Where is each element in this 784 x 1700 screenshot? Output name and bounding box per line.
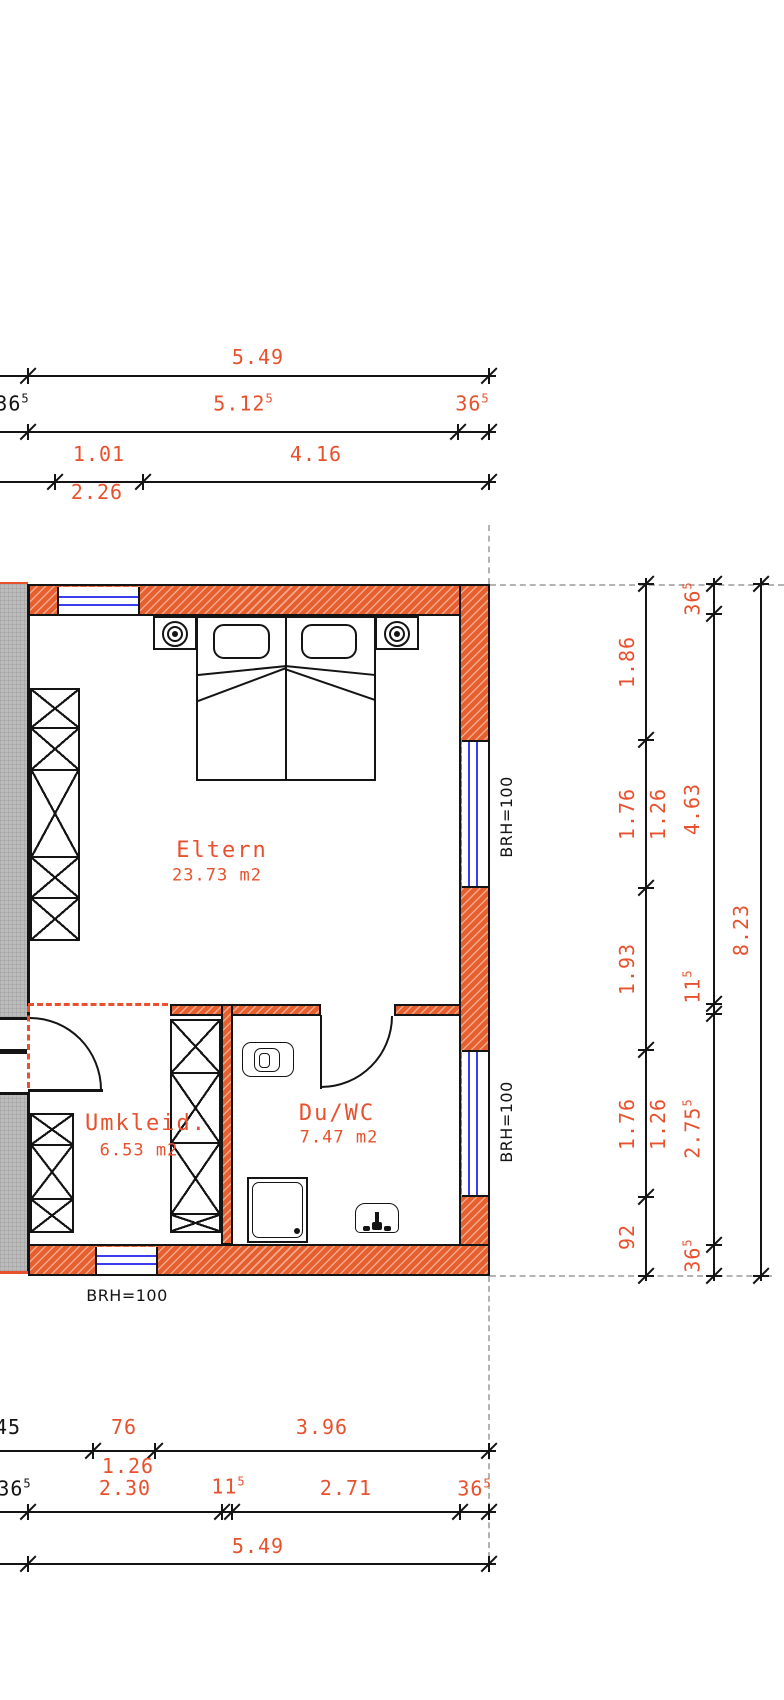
brh-label: BRH=100 [499,776,515,858]
dim-label: 1.26 [648,1098,668,1150]
brh-label: BRH=100 [499,1081,515,1163]
room-area: 7.47 m2 [300,1130,379,1147]
dim-label: 45 [0,1417,21,1437]
text-layer: 5.493655.1253651.014.162.2645763.961.263… [0,0,784,1700]
dim-label: 5.49 [232,1536,284,1556]
dim-label: 365 [0,393,29,414]
dim-label: 1.26 [648,788,668,840]
room-label: Eltern [176,840,267,862]
room-label: Du/WC [299,1103,375,1125]
dim-label: 365 [682,582,703,615]
dim-label: 365 [682,1239,703,1272]
dim-label: 1.01 [73,444,125,464]
room-label: Umkleid. [85,1113,207,1135]
dim-label: 76 [111,1417,137,1437]
dim-label: 2.30 [99,1478,151,1498]
dim-label: 365 [457,1478,490,1499]
dim-label: 2.755 [682,1099,703,1158]
dim-label: 365 [455,393,488,414]
dim-label: 1.76 [617,1098,637,1150]
dim-label: 2.71 [320,1478,372,1498]
dim-label: 5.125 [213,393,272,414]
dim-label: 2.26 [71,482,123,502]
dim-label: 1.76 [617,788,637,840]
dim-label: 365 [0,1478,31,1499]
dim-label: 115 [211,1476,244,1497]
brh-label: BRH=100 [86,1288,168,1304]
dim-label: 3.96 [296,1417,348,1437]
room-area: 6.53 m2 [100,1143,179,1160]
dim-label: 4.16 [290,444,342,464]
dim-label: 1.86 [617,636,637,688]
room-area: 23.73 m2 [172,868,262,885]
dim-label: 4.63 [682,783,702,835]
dim-label: 1.26 [102,1456,154,1476]
floor-plan-drawing: 5.493655.1253651.014.162.2645763.961.263… [0,0,784,1700]
dim-label: 1.93 [617,943,637,995]
dim-label: 92 [617,1224,637,1250]
dim-label: 115 [682,970,703,1003]
dim-label: 8.23 [731,904,751,956]
dim-label: 5.49 [232,347,284,367]
